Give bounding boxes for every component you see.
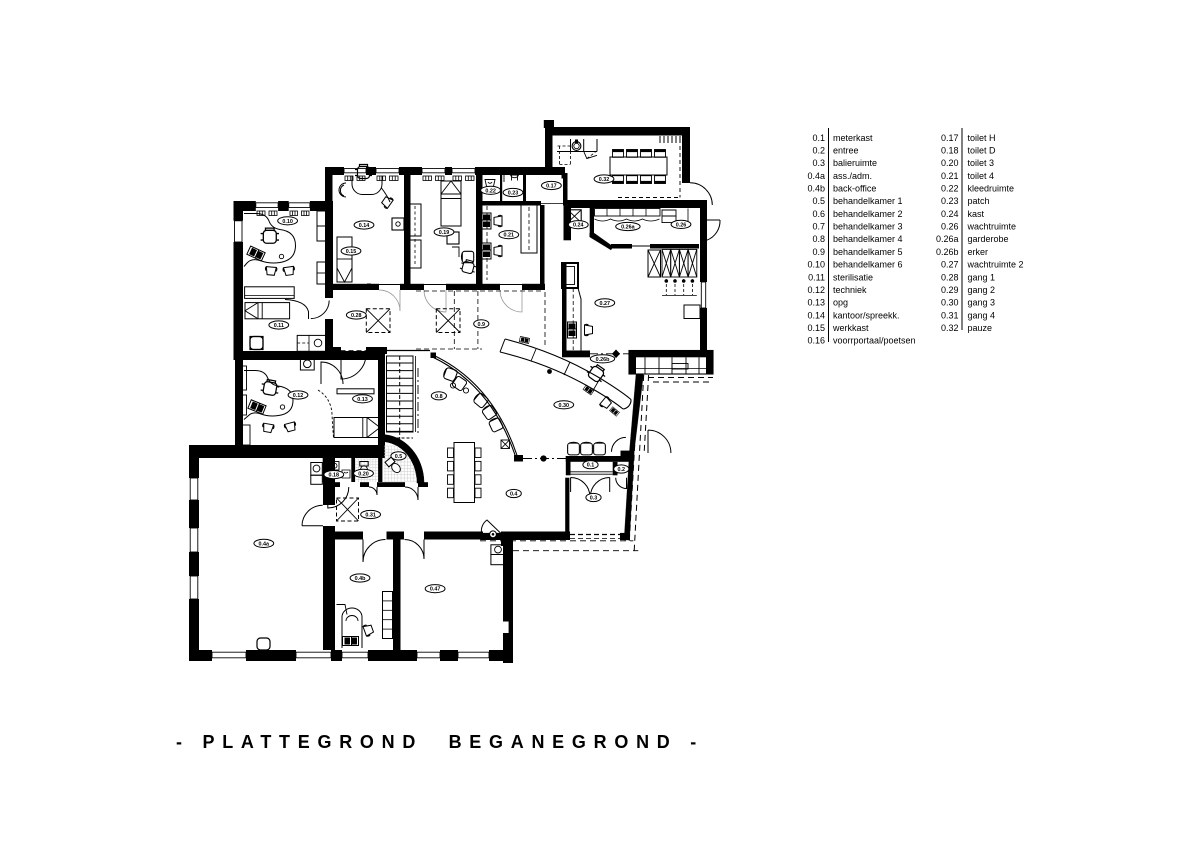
svg-text:0.4: 0.4: [510, 492, 518, 498]
svg-text:patch: patch: [968, 196, 990, 206]
svg-text:0.21: 0.21: [941, 171, 959, 181]
svg-text:0.24: 0.24: [941, 209, 959, 219]
svg-text:gang 3: gang 3: [968, 298, 996, 308]
svg-text:behandelkamer 5: behandelkamer 5: [833, 247, 903, 257]
svg-text:0.47: 0.47: [430, 587, 441, 593]
svg-text:0.26: 0.26: [941, 222, 959, 232]
svg-text:0.19: 0.19: [439, 230, 450, 236]
svg-text:0.3: 0.3: [590, 496, 598, 502]
svg-text:0.3: 0.3: [812, 158, 825, 168]
svg-text:0.10: 0.10: [282, 219, 293, 225]
svg-text:entree: entree: [833, 146, 859, 156]
svg-text:0.13: 0.13: [357, 397, 368, 403]
svg-text:0.7: 0.7: [812, 222, 825, 232]
svg-text:0.26b: 0.26b: [936, 247, 959, 257]
svg-text:0.27: 0.27: [941, 260, 959, 270]
svg-text:erker: erker: [968, 247, 989, 257]
svg-text:wachtruimte: wachtruimte: [967, 222, 1017, 232]
svg-text:toilet D: toilet D: [968, 146, 997, 156]
svg-text:0.18: 0.18: [941, 146, 959, 156]
svg-text:0.11: 0.11: [274, 323, 284, 329]
svg-text:0.32: 0.32: [941, 323, 959, 333]
svg-text:0.5: 0.5: [395, 454, 403, 460]
svg-text:0.30: 0.30: [941, 298, 959, 308]
svg-text:0.5: 0.5: [812, 196, 825, 206]
svg-text:0.27: 0.27: [600, 301, 611, 307]
svg-text:0.20: 0.20: [941, 158, 959, 168]
svg-text:0.4b: 0.4b: [355, 576, 366, 582]
svg-text:0.31: 0.31: [365, 513, 376, 519]
svg-text:pauze: pauze: [968, 323, 993, 333]
svg-text:0.8: 0.8: [812, 234, 825, 244]
svg-text:0.29: 0.29: [941, 285, 959, 295]
svg-text:0.21: 0.21: [504, 233, 515, 239]
svg-text:kleedruimte: kleedruimte: [968, 184, 1015, 194]
svg-text:meterkast: meterkast: [833, 133, 873, 143]
svg-text:0.20: 0.20: [358, 471, 369, 477]
svg-text:0.28: 0.28: [351, 313, 362, 319]
svg-text:toilet H: toilet H: [968, 133, 996, 143]
svg-text:gang 2: gang 2: [968, 285, 996, 295]
svg-text:0.12: 0.12: [293, 393, 304, 399]
svg-text:kast: kast: [968, 209, 985, 219]
svg-text:0.17: 0.17: [546, 184, 557, 190]
svg-text:behandelkamer 6: behandelkamer 6: [833, 260, 903, 270]
svg-text:behandelkamer 1: behandelkamer 1: [833, 196, 903, 206]
svg-text:0.8: 0.8: [435, 394, 443, 400]
svg-text:toilet 3: toilet 3: [968, 158, 995, 168]
svg-text:voorrportaal/poetsen: voorrportaal/poetsen: [833, 336, 916, 346]
svg-text:0.24: 0.24: [573, 223, 584, 229]
svg-text:werkkast: werkkast: [832, 323, 869, 333]
svg-text:0.4b: 0.4b: [807, 184, 825, 194]
svg-text:behandelkamer 2: behandelkamer 2: [833, 209, 903, 219]
svg-text:gang 4: gang 4: [968, 310, 996, 320]
svg-text:0.26a: 0.26a: [621, 225, 635, 231]
svg-text:0.4a: 0.4a: [807, 171, 825, 181]
svg-text:0.26: 0.26: [676, 222, 687, 228]
svg-text:0.2: 0.2: [618, 467, 626, 473]
svg-text:ass./adm.: ass./adm.: [833, 171, 872, 181]
svg-text:0.23: 0.23: [941, 196, 959, 206]
svg-text:0.1: 0.1: [587, 463, 595, 469]
svg-text:0.18: 0.18: [329, 473, 340, 479]
svg-text:0.9: 0.9: [478, 322, 486, 328]
svg-text:0.14: 0.14: [807, 310, 825, 320]
svg-text:0.22: 0.22: [485, 188, 496, 194]
svg-text:opg: opg: [833, 298, 848, 308]
svg-text:- PLATTEGROND BEGANEGROND -: - PLATTEGROND BEGANEGROND -: [176, 731, 704, 752]
svg-text:0.31: 0.31: [941, 310, 959, 320]
svg-text:toilet 4: toilet 4: [968, 171, 995, 181]
svg-text:0.6: 0.6: [812, 209, 825, 219]
svg-text:garderobe: garderobe: [968, 234, 1009, 244]
svg-text:0.17: 0.17: [941, 133, 959, 143]
svg-text:0.23: 0.23: [508, 191, 519, 197]
svg-text:gang 1: gang 1: [968, 272, 996, 282]
svg-text:kantoor/spreekk.: kantoor/spreekk.: [833, 310, 900, 320]
svg-text:wachtruimte 2: wachtruimte 2: [967, 260, 1024, 270]
svg-text:0.10: 0.10: [807, 260, 825, 270]
svg-text:0.30: 0.30: [559, 403, 570, 409]
svg-text:0.4a: 0.4a: [259, 541, 270, 547]
svg-text:0.15: 0.15: [807, 323, 825, 333]
svg-text:0.9: 0.9: [812, 247, 825, 257]
svg-text:behandelkamer 3: behandelkamer 3: [833, 222, 903, 232]
svg-text:0.26a: 0.26a: [936, 234, 959, 244]
svg-text:0.11: 0.11: [808, 272, 825, 282]
svg-text:behandelkamer 4: behandelkamer 4: [833, 234, 903, 244]
svg-text:0.15: 0.15: [346, 249, 357, 255]
svg-text:0.16: 0.16: [807, 336, 825, 346]
svg-text:0.2: 0.2: [812, 146, 825, 156]
svg-text:0.1: 0.1: [812, 133, 825, 143]
svg-text:0.14: 0.14: [359, 223, 370, 229]
svg-text:techniek: techniek: [833, 285, 867, 295]
svg-text:0.32: 0.32: [599, 177, 610, 183]
svg-text:back-office: back-office: [833, 184, 876, 194]
svg-text:sterilisatie: sterilisatie: [833, 272, 873, 282]
svg-text:0.26b: 0.26b: [596, 357, 610, 363]
svg-text:0.28: 0.28: [941, 272, 959, 282]
svg-text:balieruimte: balieruimte: [833, 158, 877, 168]
svg-text:0.13: 0.13: [807, 298, 825, 308]
svg-text:0.22: 0.22: [941, 184, 959, 194]
svg-text:0.12: 0.12: [807, 285, 825, 295]
